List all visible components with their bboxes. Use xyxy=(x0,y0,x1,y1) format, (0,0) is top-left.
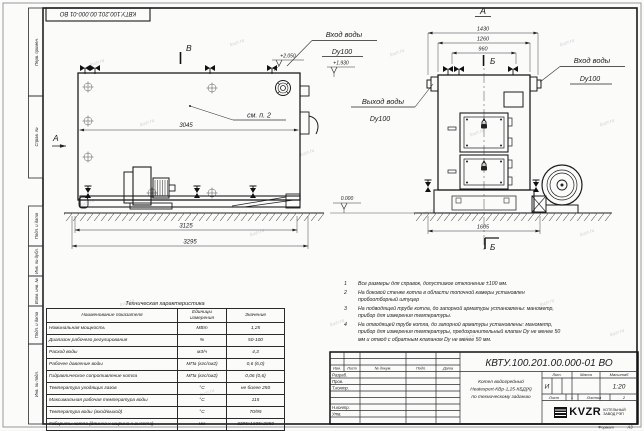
col-header-name: Наименование показателя xyxy=(47,309,178,323)
front-view-title: А xyxy=(479,6,486,16)
tech-table-body: Номинальная мощностьМВт1,25Диапазон рабо… xyxy=(47,323,285,431)
section-marker-bottom: Б xyxy=(490,243,495,252)
rear-stubs xyxy=(300,86,318,134)
front-inlet-dn: Dy100 xyxy=(580,76,600,83)
side-inlet-dn: Dy100 xyxy=(332,49,352,56)
front-outlet-label: Выход воды xyxy=(362,97,405,106)
table-cell: °С xyxy=(178,383,227,395)
table-cell: 1,25 xyxy=(227,323,285,335)
table-cell: МПа (кгс/см2) xyxy=(178,359,227,371)
table-cell: 4,3 xyxy=(227,347,285,359)
front-view: А xyxy=(330,6,625,252)
table-row: Габариты котла (длинна х ширина х высота… xyxy=(47,419,285,431)
table-cell: 50-100 xyxy=(227,335,285,347)
table-cell: МВт xyxy=(178,323,227,335)
note-item: 4На отводящей трубе котла, до запорной а… xyxy=(344,322,564,345)
margin-label: Справ. № xyxy=(34,127,39,146)
see-item-label: см. п. 2 xyxy=(247,113,271,120)
table-cell: Габариты котла (длинна х ширина х высота… xyxy=(47,419,178,431)
table-cell: Температура воды (вход/выход) xyxy=(47,407,178,419)
note-item: 2На боковой стенке котла в области топоч… xyxy=(344,290,564,305)
col-header-value: Значение xyxy=(227,309,285,323)
dim-3125: 3125 xyxy=(179,224,193,230)
table-cell: Расход воды xyxy=(47,347,178,359)
tech-characteristics: Техническая характеристика Наименование … xyxy=(46,301,284,431)
logo-word: KVZR xyxy=(569,406,601,418)
front-inlet-label: Вход воды xyxy=(574,56,611,65)
dim-1260: 1260 xyxy=(477,37,490,43)
company-name: КОТЕЛЬНЫЙ ЗАВОД РЭП xyxy=(603,408,626,416)
table-row: Номинальная мощностьМВт1,25 xyxy=(47,323,285,335)
dim-1430: 1430 xyxy=(477,27,490,33)
table-cell: °С xyxy=(178,407,227,419)
table-header-row: Наименование показателя Единицы измерени… xyxy=(47,309,285,323)
product-name-line3: по техническому заданию xyxy=(471,394,531,400)
col-podp: Подп. xyxy=(416,366,426,370)
table-row: Максимальная рабочая температура воды°С1… xyxy=(47,395,285,407)
table-cell: Максимальная рабочая температура воды xyxy=(47,395,178,407)
view-marker-a: А xyxy=(52,133,59,143)
table-cell: 70/95 xyxy=(227,407,285,419)
door-handle-icon xyxy=(481,121,487,129)
table-cell: не более 250 xyxy=(227,383,285,395)
col-list: Лист xyxy=(346,366,357,370)
elev-0000: 0.000 xyxy=(341,196,354,202)
section-marker-top: Б xyxy=(490,57,495,66)
margin-label: Взам. инв. № xyxy=(34,278,39,304)
table-cell: 0,06 (0,6) xyxy=(227,371,285,383)
table-row: Расход водым3/ч4,3 xyxy=(47,347,285,359)
table-cell: Номинальная мощность xyxy=(47,323,178,335)
col-data: Дата xyxy=(442,366,453,370)
margin-label: Инв. № подл. xyxy=(34,371,39,397)
format-value: А3 xyxy=(626,424,633,429)
skid-frame xyxy=(79,194,300,208)
stamp-doc-number: КВТУ.100.201.00.000-01 ВО xyxy=(59,10,136,16)
elev-2050: +2.050 xyxy=(280,54,296,60)
sheets-label: Листов xyxy=(586,395,602,400)
side-view: 3045 xyxy=(52,30,377,249)
role-razrab: Разраб. xyxy=(332,373,347,378)
lit-header: Лит. xyxy=(551,372,561,377)
mass-header: Масса xyxy=(580,372,593,377)
sheet-value: 1 xyxy=(571,395,573,400)
col-dokum: № докум. xyxy=(375,366,392,370)
dim-3045: 3045 xyxy=(179,123,193,129)
table-cell: 115 xyxy=(227,395,285,407)
section-marker-b: В xyxy=(186,43,192,53)
front-outlet-dn: Dy100 xyxy=(370,116,390,123)
furnace-doors xyxy=(448,113,512,189)
product-name-line1: Котел водогрейный xyxy=(478,378,524,385)
table-cell: °С xyxy=(178,395,227,407)
role-prov: Пров. xyxy=(332,379,343,384)
col-izm: Изм. xyxy=(333,366,341,370)
note-item: 3На подводящей трубе котла, до запорной … xyxy=(344,306,564,321)
drawing-sheet: { "watermark": "kvzr.ru", "stamp": "КВТУ… xyxy=(0,0,644,430)
table-cell: 0,6 (6,0) xyxy=(227,359,285,371)
tech-table: Наименование показателя Единицы измерени… xyxy=(46,308,285,431)
doc-number: КВТУ.100.201.00.000-01 ВО xyxy=(485,358,613,369)
table-row: Температура уходящих газов°Сне более 250 xyxy=(47,383,285,395)
table-cell: Диапазон рабочего регулирования xyxy=(47,335,178,347)
sheets-value: 2 xyxy=(622,395,626,400)
role-nkontr: Н.контр. xyxy=(332,405,350,410)
table-row: Гидравлическое сопротивление котлаМПа (к… xyxy=(47,371,285,383)
blower-fan xyxy=(532,165,582,213)
note-item: 1Все размеры для справок, допустимое отк… xyxy=(344,281,564,289)
table-row: Рабочее давление водыМПа (кгс/см2)0,6 (6… xyxy=(47,359,285,371)
sheet-label: Лист xyxy=(548,395,560,400)
role-tkontr: Т.контр. xyxy=(332,386,349,391)
burner-assembly xyxy=(124,167,175,209)
table-cell: Рабочее давление воды xyxy=(47,359,178,371)
elev-1930: +1.930 xyxy=(333,61,349,67)
table-cell: Гидравлическое сопротивление котла xyxy=(47,371,178,383)
table-cell: МПа (кгс/см2) xyxy=(178,371,227,383)
scale-header: Масштаб xyxy=(610,372,629,377)
margin-label: Инв. № дубл. xyxy=(34,248,39,274)
margin-label: Подп. и дата xyxy=(34,311,39,338)
side-inlet-label: Вход воды xyxy=(326,30,363,39)
lit-value: И xyxy=(545,384,550,391)
col-header-units: Единицы измерения xyxy=(178,309,227,323)
table-cell: мм xyxy=(178,419,227,431)
table-cell: м3/ч xyxy=(178,347,227,359)
table-cell: Температура уходящих газов xyxy=(47,383,178,395)
table-row: Диапазон рабочего регулирования%50-100 xyxy=(47,335,285,347)
format-label: Формат xyxy=(598,424,615,429)
table-cell: 3295х1605х2050 xyxy=(227,419,285,431)
dim-960: 960 xyxy=(478,47,488,53)
role-utv: Утв. xyxy=(332,412,342,417)
tech-table-title: Техническая характеристика xyxy=(46,301,284,307)
dim-3295: 3295 xyxy=(183,240,197,246)
margin-label: Перв. примен. xyxy=(34,38,39,66)
dim-1605: 1605 xyxy=(477,225,490,231)
manhole xyxy=(276,81,291,96)
table-cell: % xyxy=(178,335,227,347)
table-row: Температура воды (вход/выход)°С70/95 xyxy=(47,407,285,419)
company-logo: KVZR КОТЕЛЬНЫЙ ЗАВОД РЭП xyxy=(544,402,636,422)
scale-value: 1:20 xyxy=(613,384,626,391)
product-name-line2: Heatexpert-КВр-1,25-КБД(К) xyxy=(470,387,532,393)
margin-label: Подп. и дата xyxy=(34,212,39,239)
kvzr-logo-icon xyxy=(554,407,567,418)
notes-list: 1Все размеры для справок, допустимое отк… xyxy=(344,281,564,345)
